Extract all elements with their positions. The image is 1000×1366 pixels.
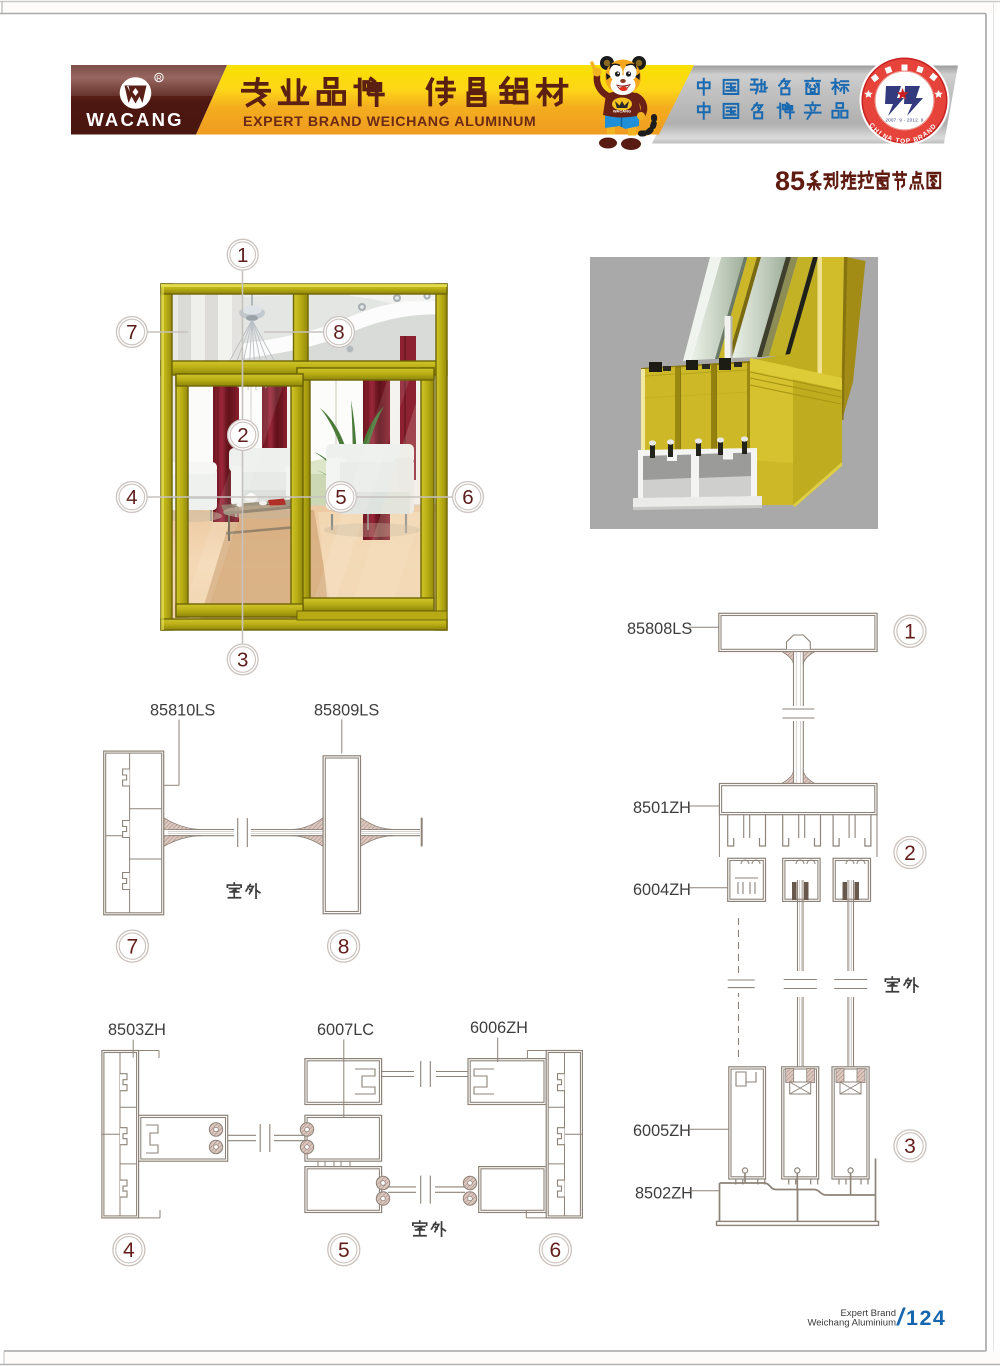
svg-text:85: 85 (775, 166, 805, 196)
svg-text:85808LS: 85808LS (627, 620, 692, 638)
svg-text:85810LS: 85810LS (150, 702, 215, 720)
svg-text:8: 8 (338, 935, 350, 958)
svg-text:4: 4 (126, 486, 137, 509)
svg-text:8502ZH: 8502ZH (635, 1185, 693, 1203)
svg-text:6: 6 (550, 1239, 562, 1262)
svg-text:8503ZH: 8503ZH (108, 1021, 166, 1039)
svg-text:8: 8 (333, 321, 344, 344)
svg-text:EXPERT BRAND WEICHANG ALUMINUM: EXPERT BRAND WEICHANG ALUMINUM (243, 114, 536, 130)
svg-text:1: 1 (904, 621, 916, 644)
svg-text:O: O (900, 138, 906, 145)
svg-text:WACANG: WACANG (86, 109, 183, 130)
svg-text:85809LS: 85809LS (314, 702, 379, 720)
svg-text:8501ZH: 8501ZH (633, 799, 691, 817)
svg-text:4: 4 (123, 1239, 135, 1262)
svg-text:1: 1 (237, 244, 248, 267)
svg-text:WACANG: WACANG (613, 109, 631, 114)
svg-text:7: 7 (126, 321, 137, 344)
svg-text:2: 2 (237, 424, 248, 447)
svg-text:6004ZH: 6004ZH (633, 881, 691, 899)
svg-text:6005ZH: 6005ZH (633, 1122, 691, 1140)
svg-text:6: 6 (462, 486, 473, 509)
svg-text:R: R (156, 74, 162, 83)
svg-text:3: 3 (904, 1135, 916, 1158)
svg-text:5: 5 (335, 486, 346, 509)
svg-text:6007LC: 6007LC (317, 1021, 374, 1039)
svg-text:3: 3 (237, 649, 248, 672)
svg-text:5: 5 (338, 1239, 350, 1262)
svg-text:Weichang Aluminium: Weichang Aluminium (807, 1318, 896, 1329)
svg-text:2007. 9 - 2012. 9: 2007. 9 - 2012. 9 (885, 118, 923, 123)
svg-text:7: 7 (127, 935, 139, 958)
svg-text:2: 2 (904, 842, 916, 865)
svg-text:6006ZH: 6006ZH (470, 1019, 528, 1037)
svg-text:124: 124 (906, 1306, 946, 1330)
